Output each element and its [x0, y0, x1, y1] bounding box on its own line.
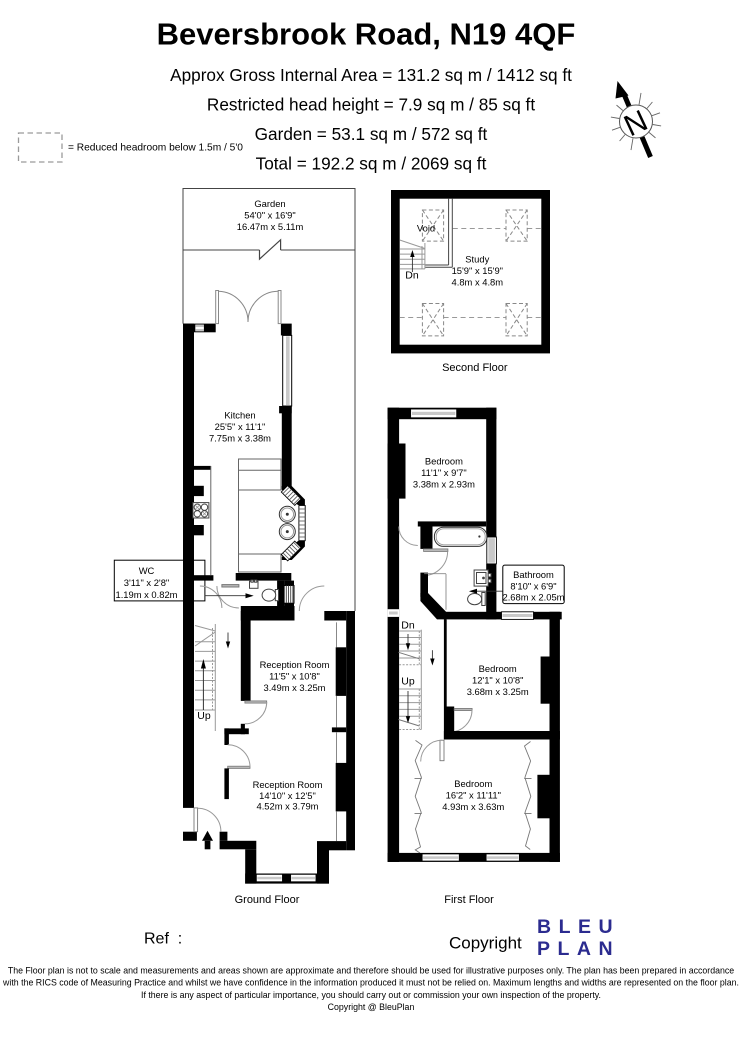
svg-text:The Floor plan is not to scale: The Floor plan is not to scale and measu… — [8, 966, 734, 976]
svg-text:11'1" x 9'7": 11'1" x 9'7" — [421, 467, 467, 478]
svg-text:14'10" x 12'5": 14'10" x 12'5" — [259, 790, 316, 801]
svg-text:7.75m x 3.38m: 7.75m x 3.38m — [209, 433, 271, 444]
svg-text:Copyright: Copyright — [449, 934, 522, 953]
svg-text:11'5" x 10'8": 11'5" x 10'8" — [269, 671, 320, 682]
svg-text:Reception Room: Reception Room — [253, 779, 323, 790]
svg-text:Dn: Dn — [405, 269, 419, 281]
svg-text:Bedroom: Bedroom — [425, 456, 463, 467]
svg-text:4.8m x 4.8m: 4.8m x 4.8m — [452, 277, 504, 288]
svg-text:WC: WC — [139, 565, 155, 576]
svg-text:Study: Study — [465, 254, 489, 265]
svg-text:Beversbrook Road, N19 4QF: Beversbrook Road, N19 4QF — [157, 17, 576, 52]
svg-text:3.68m x 3.25m: 3.68m x 3.25m — [467, 686, 529, 697]
svg-text:16'2" x 11'11": 16'2" x 11'11" — [446, 790, 501, 801]
svg-text:2.68m x 2.05m: 2.68m x 2.05m — [502, 592, 564, 603]
svg-text:3.49m x 3.25m: 3.49m x 3.25m — [263, 682, 325, 693]
svg-text:Copyright @ BleuPlan: Copyright @ BleuPlan — [328, 1002, 415, 1012]
svg-text:16.47m x 5.11m: 16.47m x 5.11m — [237, 221, 304, 232]
svg-text:with the RICS code of Measurin: with the RICS code of Measuring Practice… — [2, 978, 739, 988]
svg-text:3'11" x 2'8": 3'11" x 2'8" — [124, 577, 170, 588]
svg-text:Total = 192.2 sq m / 2069 sq f: Total = 192.2 sq m / 2069 sq ft — [256, 154, 487, 174]
svg-text:54'0" x 16'9": 54'0" x 16'9" — [244, 210, 295, 221]
svg-text:PLAN: PLAN — [537, 938, 620, 960]
svg-text:8'10" x 6'9": 8'10" x 6'9" — [510, 581, 556, 592]
svg-text:Kitchen: Kitchen — [224, 410, 255, 421]
svg-text:4.52m x 3.79m: 4.52m x 3.79m — [256, 801, 318, 812]
svg-text:Second Floor: Second Floor — [442, 362, 508, 374]
svg-text:First Floor: First Floor — [444, 894, 494, 906]
svg-text:Bedroom: Bedroom — [479, 663, 517, 674]
svg-text:12'1" x 10'8": 12'1" x 10'8" — [472, 675, 523, 686]
svg-text:Ref :: Ref : — [144, 931, 182, 948]
svg-text:1.19m x 0.82m: 1.19m x 0.82m — [115, 589, 177, 600]
svg-text:Approx Gross Internal Area = 1: Approx Gross Internal Area = 131.2 sq m … — [170, 65, 572, 85]
svg-text:Reception Room: Reception Room — [260, 659, 330, 670]
svg-text:Void: Void — [417, 223, 435, 234]
svg-text:Up: Up — [197, 710, 211, 722]
svg-text:If there is any aspect of part: If there is any aspect of particular imp… — [141, 990, 601, 1000]
svg-text:4.93m x 3.63m: 4.93m x 3.63m — [442, 801, 504, 812]
svg-text:Up: Up — [401, 676, 415, 688]
svg-text:Ground Floor: Ground Floor — [235, 894, 300, 906]
svg-text:Bathroom: Bathroom — [513, 569, 554, 580]
svg-text:= Reduced headroom below 1.5m: = Reduced headroom below 1.5m / 5'0 — [68, 143, 243, 154]
svg-text:Garden: Garden — [254, 198, 285, 209]
svg-text:25'5" x 11'1": 25'5" x 11'1" — [215, 421, 266, 432]
svg-text:BLEU: BLEU — [537, 916, 620, 938]
svg-text:Dn: Dn — [401, 620, 415, 632]
svg-text:3.38m x 2.93m: 3.38m x 2.93m — [413, 479, 475, 490]
svg-text:Restricted head height = 7.9 s: Restricted head height = 7.9 sq m / 85 s… — [207, 95, 535, 115]
svg-text:Bedroom: Bedroom — [454, 778, 492, 789]
svg-text:Garden = 53.1 sq m / 572 sq ft: Garden = 53.1 sq m / 572 sq ft — [255, 124, 488, 144]
svg-text:15'9" x 15'9": 15'9" x 15'9" — [452, 265, 503, 276]
